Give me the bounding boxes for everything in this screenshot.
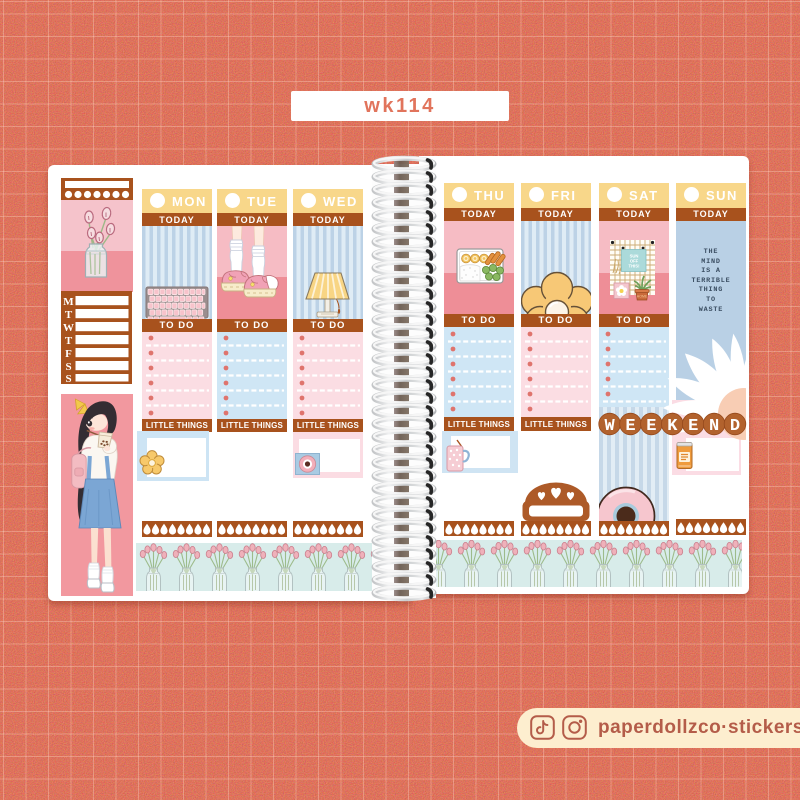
svg-text:K: K <box>667 417 678 436</box>
svg-text:S: S <box>65 373 71 384</box>
svg-text:S: S <box>65 360 71 372</box>
svg-text:T: T <box>65 308 73 320</box>
svg-text:E: E <box>646 417 656 436</box>
svg-text:E: E <box>625 417 635 436</box>
svg-text:N: N <box>709 417 719 436</box>
svg-text:T: T <box>65 334 73 346</box>
svg-text:HOME: HOME <box>637 294 648 298</box>
svg-text:W: W <box>63 321 74 333</box>
svg-text:THIS!: THIS! <box>629 263 640 268</box>
svg-text:D: D <box>730 417 740 436</box>
svg-text:M: M <box>63 295 74 307</box>
svg-text:E: E <box>688 417 698 436</box>
svg-text:F: F <box>65 347 72 359</box>
svg-text:W: W <box>604 417 615 436</box>
